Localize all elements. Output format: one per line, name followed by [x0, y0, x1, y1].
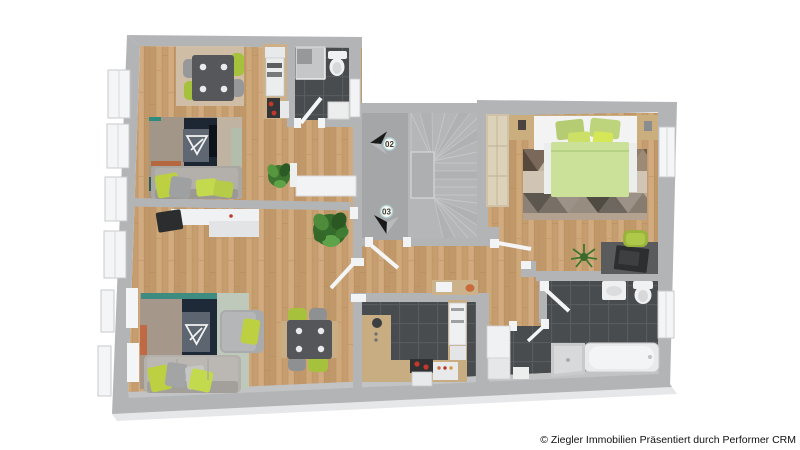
- svg-text:02: 02: [385, 140, 394, 149]
- svg-text:03: 03: [382, 208, 391, 217]
